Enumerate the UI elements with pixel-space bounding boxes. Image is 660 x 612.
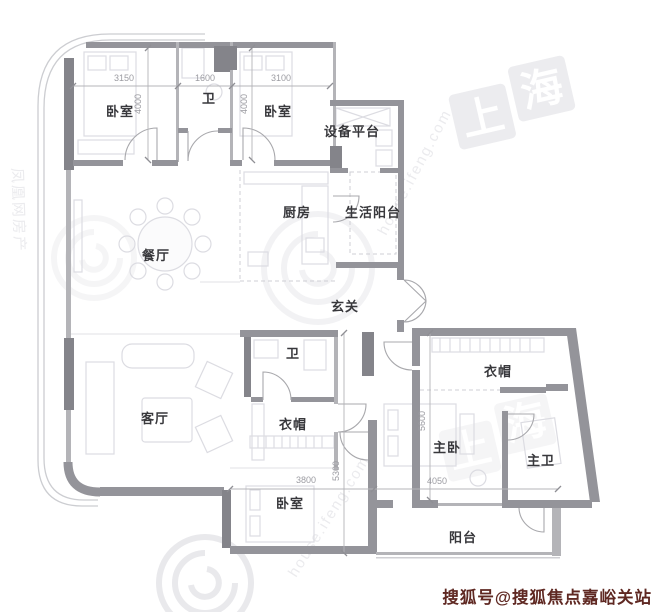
dim-label: 1600 xyxy=(195,73,215,83)
watermark-url-text: house.ifeng.com xyxy=(285,452,374,580)
dim-label: 3800 xyxy=(296,475,316,485)
room-label-service-balcony: 生活阳台 xyxy=(345,205,401,220)
room-label-master-bedroom: 主卧 xyxy=(433,440,461,455)
room-label-living-room: 客厅 xyxy=(141,411,169,426)
dim-label: 4000 xyxy=(133,94,143,114)
room-label-bedroom-top-right: 卧室 xyxy=(264,104,292,119)
dim-label: 4050 xyxy=(427,476,447,486)
dim-label: 5600 xyxy=(417,411,427,431)
room-label-kitchen: 厨房 xyxy=(283,205,311,220)
room-label-equipment-platform: 设备平台 xyxy=(324,124,380,139)
room-label-bath-top: 卫 xyxy=(202,91,216,106)
room-label-bedroom-bottom: 卧室 xyxy=(276,496,304,511)
room-label-master-bath: 主卫 xyxy=(527,453,555,468)
floor-plan-page: 上 海 上 海 house.ifeng.com house.ifeng.com … xyxy=(0,0,660,612)
floor-plan: 上 海 上 海 house.ifeng.com house.ifeng.com … xyxy=(0,0,660,612)
room-label-bedroom-top-left: 卧室 xyxy=(106,104,134,119)
room-label-balcony: 阳台 xyxy=(449,530,477,545)
watermark-city-badge-faint: 上 海 xyxy=(435,393,561,483)
room-label-bath-middle: 卫 xyxy=(286,346,300,361)
living-room-sofa xyxy=(86,344,233,454)
sohu-credit-text: 搜狐号@搜狐焦点嘉峪关站 xyxy=(442,587,652,607)
room-label-cloakroom-master: 衣帽 xyxy=(484,364,512,379)
dim-label: 4000 xyxy=(239,94,249,114)
room-label-cloakroom-middle: 衣帽 xyxy=(279,417,307,432)
dim-label: 5300 xyxy=(331,461,341,481)
watermark-brand-text: 凤凰网房产 xyxy=(8,168,28,254)
room-label-dining-room: 餐厅 xyxy=(141,248,170,263)
dim-label: 3100 xyxy=(271,73,291,83)
dim-label: 3150 xyxy=(114,73,134,83)
watermark-city-badge: 上 海 xyxy=(445,55,580,151)
room-label-foyer: 玄关 xyxy=(331,299,359,314)
